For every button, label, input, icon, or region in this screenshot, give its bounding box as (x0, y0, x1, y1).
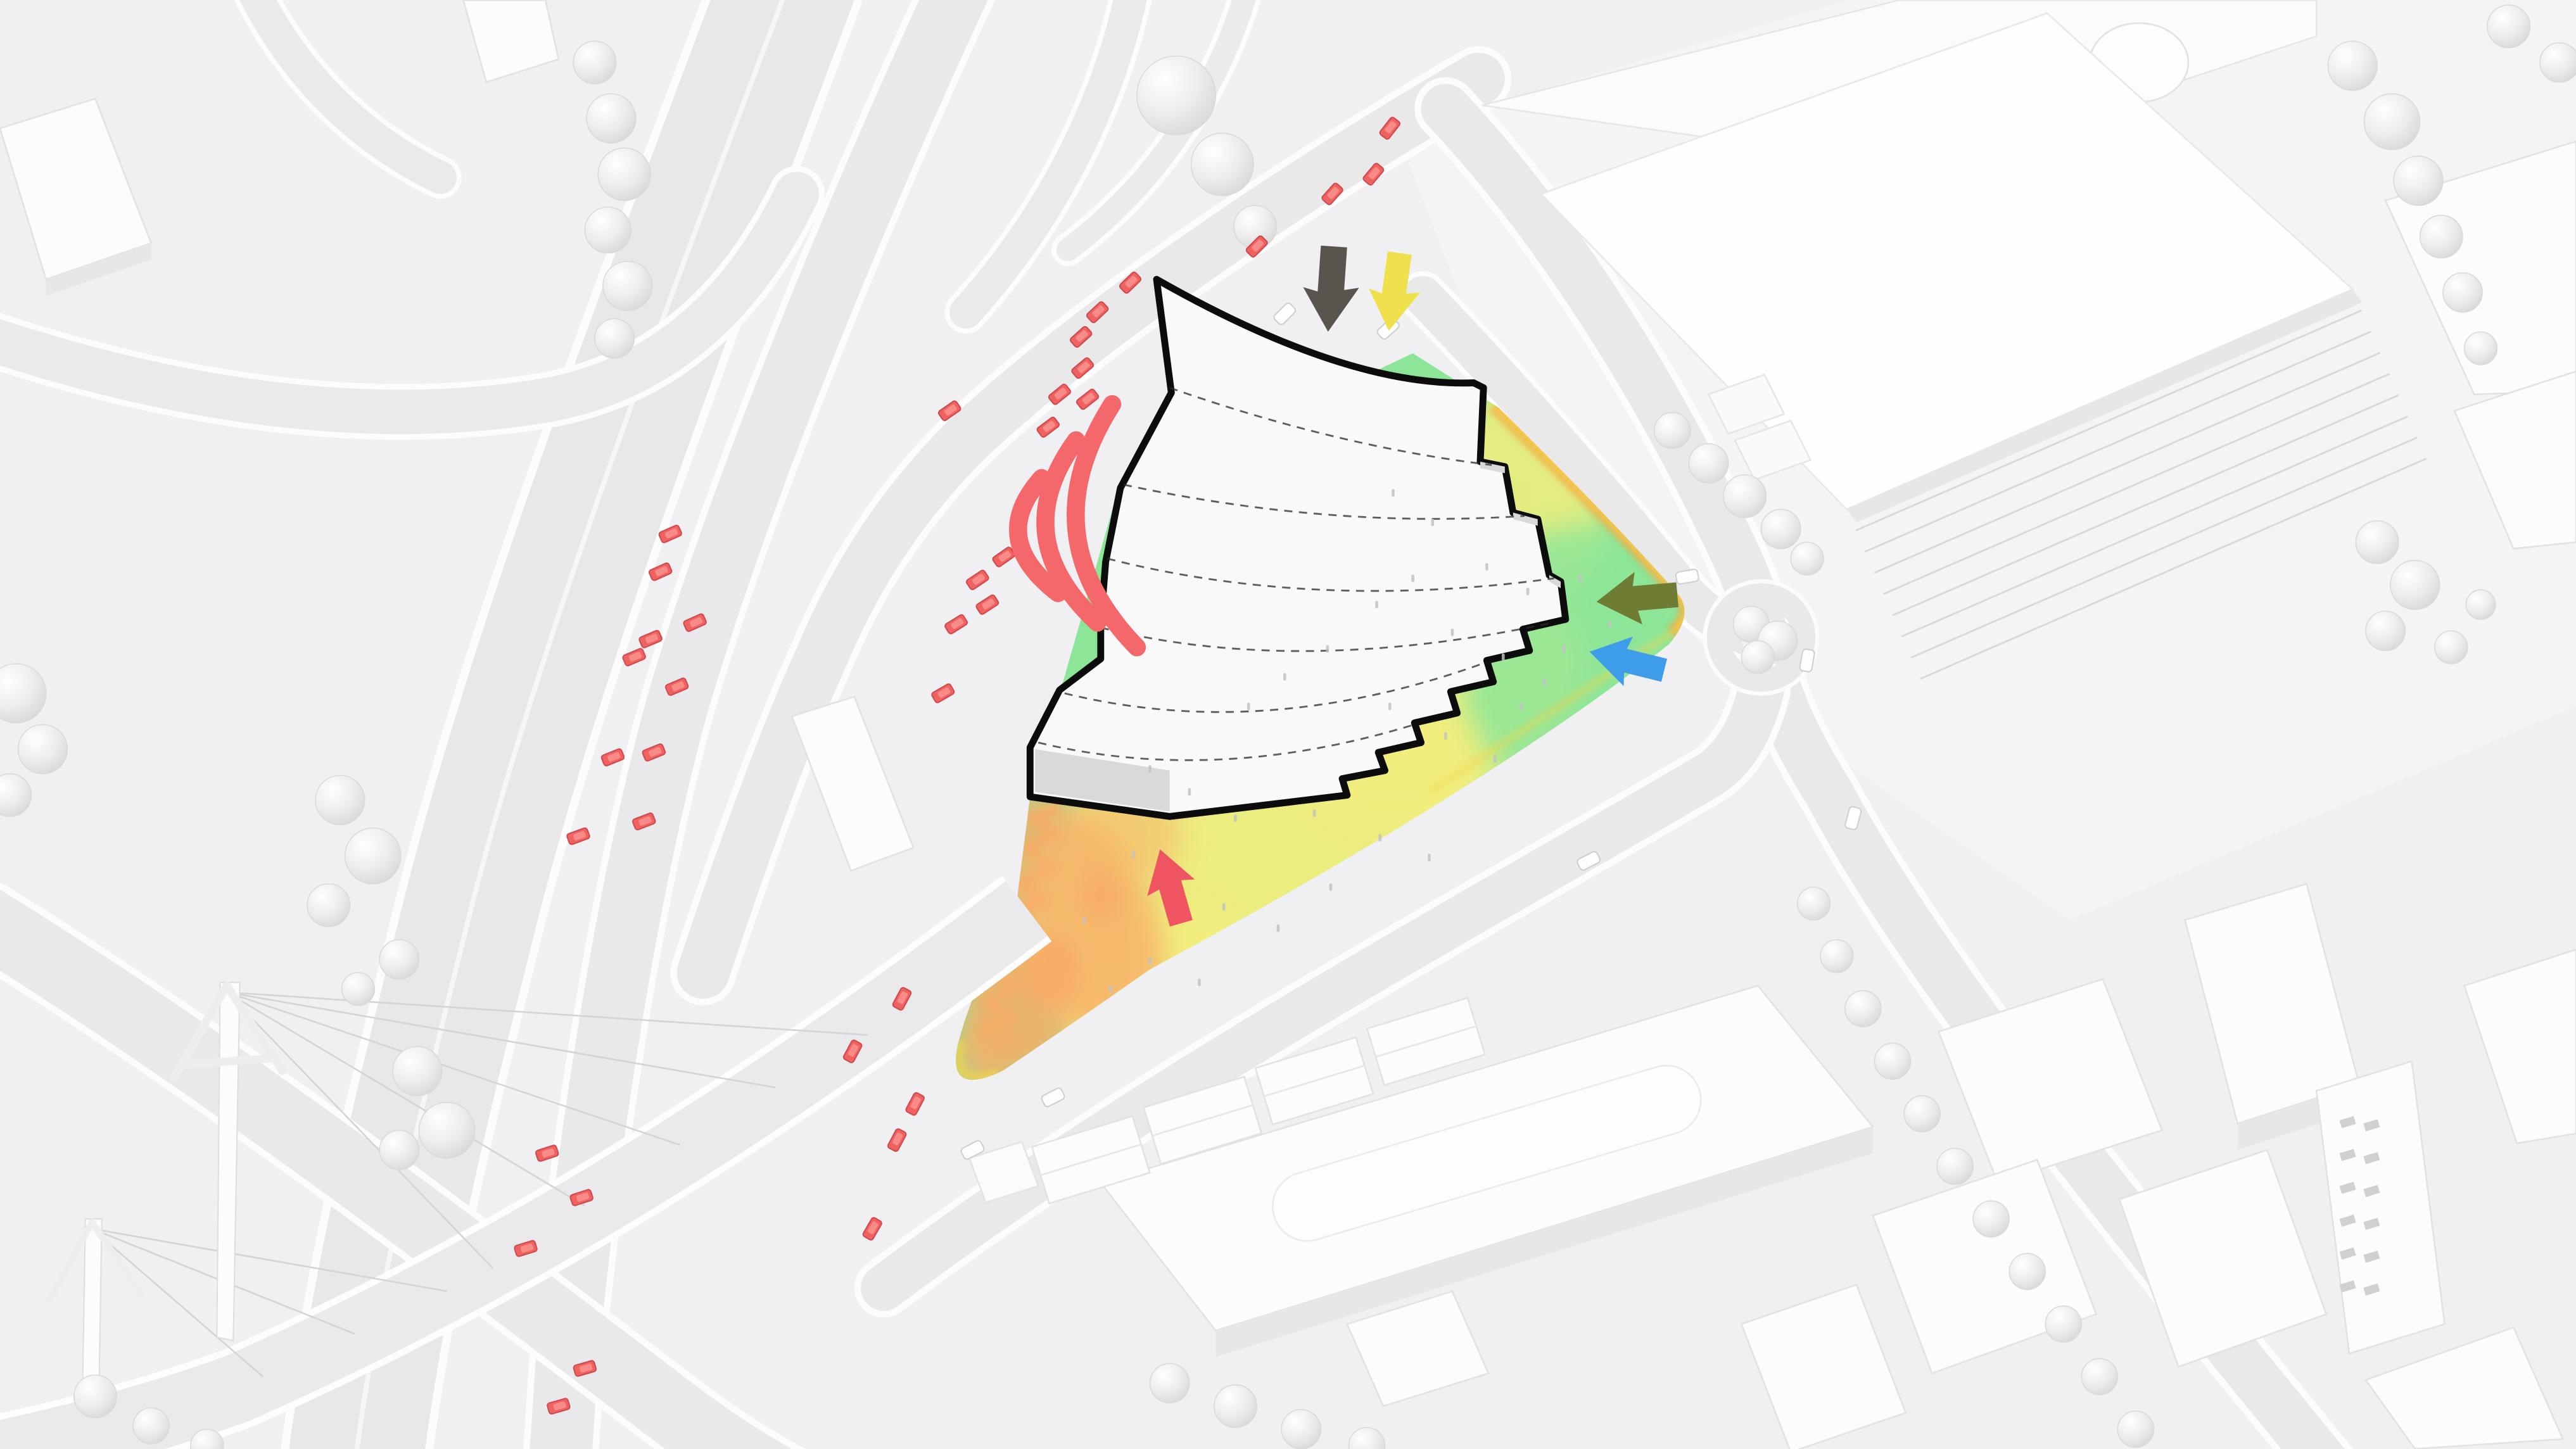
tree (345, 828, 401, 883)
person-figure (1247, 703, 1250, 711)
tree (342, 973, 375, 1006)
person-figure (1378, 834, 1381, 842)
tree (1137, 56, 1216, 135)
person-figure (1543, 678, 1546, 686)
heat-orange-spot-2 (1079, 869, 1122, 921)
tree (2356, 521, 2398, 563)
tree (133, 1408, 169, 1444)
tree (603, 262, 652, 311)
tree (573, 41, 616, 84)
tree (393, 1046, 442, 1096)
tree (1191, 133, 1253, 196)
tree (2009, 1253, 2045, 1289)
tree (2394, 156, 2443, 206)
tree (2435, 631, 2468, 664)
person-figure (1563, 645, 1566, 653)
person-figure (1188, 788, 1191, 795)
person-figure (1388, 703, 1392, 711)
tree (2443, 273, 2482, 312)
tree (2466, 590, 2496, 619)
person-figure (1609, 621, 1612, 628)
tree (379, 940, 419, 979)
person-figure (1502, 654, 1505, 661)
tree (2465, 332, 2497, 365)
tree (2390, 560, 2440, 610)
person-figure (1222, 903, 1226, 911)
tree (2420, 215, 2463, 258)
person-figure (1428, 854, 1431, 861)
tree (2045, 1306, 2081, 1342)
tree (18, 724, 68, 774)
tree (1741, 641, 1774, 674)
tree (419, 1103, 474, 1158)
person-figure (1579, 574, 1582, 582)
person-figure (1329, 883, 1333, 891)
person-figure (1283, 673, 1286, 681)
tree (1798, 887, 1830, 920)
person-figure (1132, 851, 1135, 858)
person-figure (1148, 765, 1152, 773)
tree (2540, 43, 2576, 82)
tree (1973, 1201, 2009, 1237)
person-figure (1444, 732, 1447, 740)
person-figure (1411, 574, 1414, 582)
tree (595, 319, 634, 358)
tree (1845, 990, 1881, 1027)
tree (1281, 1410, 1321, 1449)
tree (2366, 611, 2405, 650)
person-figure (1234, 814, 1237, 822)
tree (2487, 5, 2530, 47)
tree (307, 884, 350, 927)
tree (1820, 940, 1853, 973)
tree (2364, 94, 2420, 149)
tree (587, 94, 636, 143)
tree (1150, 1364, 1190, 1403)
person-figure (1198, 978, 1201, 986)
person-figure (1485, 563, 1488, 571)
person-figure (1392, 489, 1395, 497)
person-figure (1083, 916, 1086, 924)
person-figure (1313, 809, 1316, 817)
person-figure (1494, 756, 1497, 763)
person-figure (1451, 629, 1454, 636)
person-figure (1148, 958, 1152, 965)
tree (1689, 443, 1728, 483)
tree (1874, 1043, 1910, 1079)
person-figure (1520, 703, 1523, 711)
tree (2117, 1411, 2154, 1447)
tree (1761, 509, 1801, 548)
person-figure (1109, 985, 1112, 993)
tree (379, 1130, 419, 1170)
site-analysis-diagram (0, 0, 2576, 1449)
tree (598, 148, 650, 201)
tree (1723, 475, 1766, 517)
tree (2081, 1358, 2117, 1395)
tree (1654, 412, 1691, 448)
tree (1937, 1148, 1973, 1184)
tree (1791, 542, 1824, 575)
tree (315, 775, 365, 825)
diagram-canvas (0, 0, 2576, 1449)
person-figure (1277, 925, 1280, 932)
person-figure (1526, 588, 1530, 595)
tree (74, 1375, 117, 1417)
tree (1904, 1096, 1940, 1132)
tree (2328, 41, 2377, 91)
person-figure (1375, 601, 1378, 609)
person-figure (1431, 519, 1434, 526)
tree (585, 207, 631, 253)
tree (1214, 1385, 1257, 1427)
person-figure (1326, 645, 1329, 653)
